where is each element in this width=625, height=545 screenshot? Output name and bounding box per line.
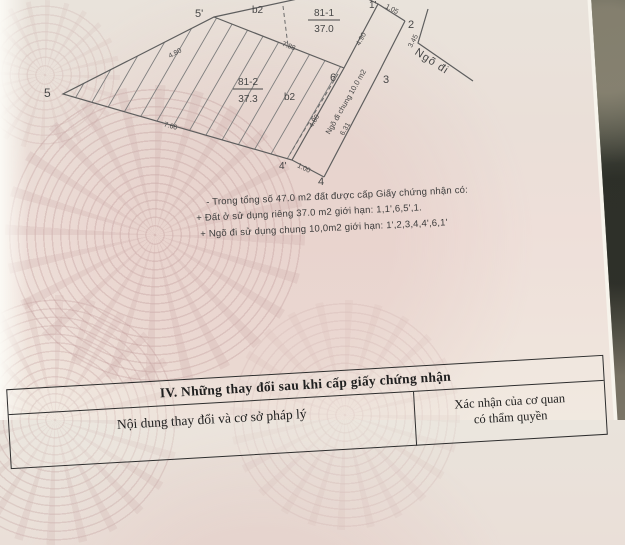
- point-1-prime: 1': [369, 0, 377, 11]
- point-3: 3: [383, 74, 389, 86]
- measure-7-66: 7.66: [163, 121, 178, 132]
- changes-table-col-confirm: Xác nhận của cơ quan có thẩm quyền: [414, 381, 607, 446]
- point-6: 6: [330, 72, 336, 84]
- parcel-b2-side-label: b2: [284, 92, 296, 103]
- measure-6-31: 6.31: [339, 122, 352, 137]
- parcel-81-2-id: 81-2: [238, 77, 258, 88]
- measure-1-00: 1.00: [296, 163, 311, 175]
- point-4-prime: 4': [279, 161, 287, 172]
- measure-4-80-strip: 4.80: [308, 114, 321, 129]
- point-4: 4: [318, 176, 324, 188]
- measure-7-88: 7.88: [281, 41, 296, 52]
- point-5: 5: [44, 86, 51, 100]
- parcel-b2-label: b2: [252, 5, 264, 16]
- measure-4-90: 4.90: [355, 32, 368, 47]
- parcel-81-2-area: 37.3: [238, 94, 258, 105]
- parcel-81-1-id: 81-1: [314, 8, 334, 19]
- parcel-81-1-area: 37.0: [314, 24, 334, 35]
- point-2: 2: [408, 19, 414, 31]
- parcel-81-2-hatch: [0, 0, 474, 218]
- point-5-prime: 5': [195, 8, 203, 20]
- measure-4-80-left: 4.80: [168, 47, 183, 60]
- measure-1-05: 1.05: [384, 3, 399, 16]
